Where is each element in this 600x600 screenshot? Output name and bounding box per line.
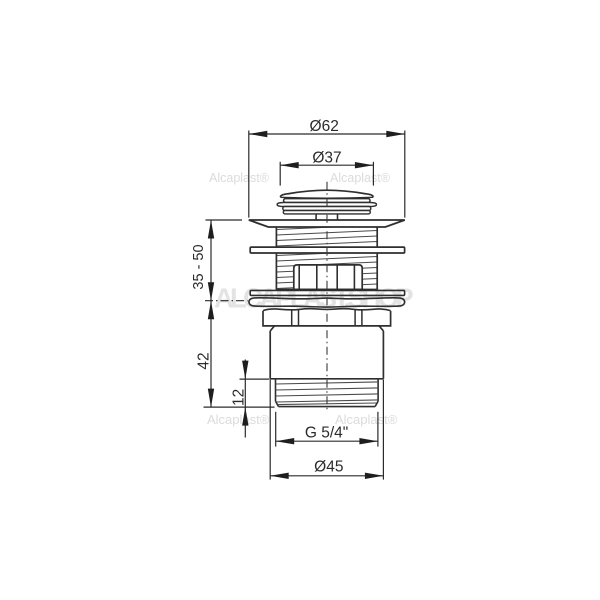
svg-text:Ø62: Ø62 <box>310 118 339 135</box>
svg-text:Alcaplast®: Alcaplast® <box>209 171 270 185</box>
svg-text:12: 12 <box>230 389 247 406</box>
svg-text:Alcaplast®: Alcaplast® <box>207 412 270 427</box>
svg-text:42: 42 <box>196 352 213 369</box>
svg-text:Ø45: Ø45 <box>314 458 343 475</box>
svg-text:35 - 50: 35 - 50 <box>191 244 207 289</box>
svg-text:Alcaplast®: Alcaplast® <box>330 171 391 185</box>
svg-text:G 5/4": G 5/4" <box>305 424 348 441</box>
svg-text:Ø37: Ø37 <box>312 149 341 166</box>
